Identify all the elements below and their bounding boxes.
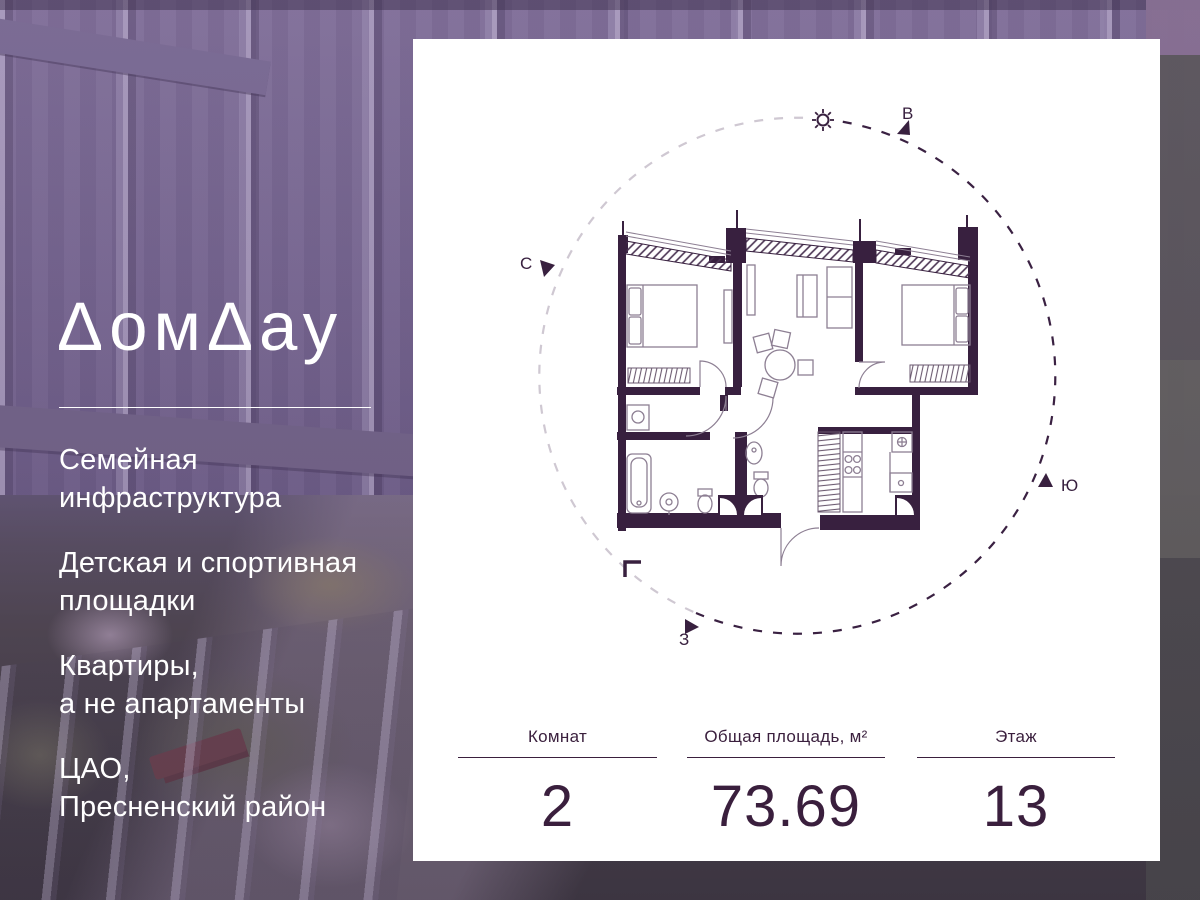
kitchen-counter-icon [843, 432, 862, 512]
door-thresholds [718, 495, 915, 515]
toilet-icon [698, 489, 712, 513]
toilet-icon [754, 472, 768, 497]
selling-point-playgrounds: Детская и спортивная площадки [59, 544, 357, 620]
shelf-icon [747, 265, 755, 315]
selling-point-district: ЦАО, Пресненский район [59, 750, 357, 826]
brand-logo: ΔомΔау [57, 292, 343, 361]
door-arc [700, 361, 726, 387]
stat-floor-value: 13 [917, 778, 1115, 836]
compass-north-label: С [520, 254, 532, 273]
wardrobe-icon [724, 290, 732, 343]
listing-card: С В Ю З [413, 39, 1160, 861]
corner-mark [625, 562, 641, 577]
side-table-icon [798, 360, 813, 375]
compass-west-label: З [679, 630, 689, 649]
basin-icon [746, 442, 762, 464]
balcony-door-arc [781, 528, 819, 566]
closet-icon [818, 432, 840, 512]
compass-markers: С В Ю З [520, 104, 1078, 649]
stat-floor-label: Этаж [917, 727, 1115, 758]
chair-icon [758, 378, 778, 398]
sun-icon [809, 106, 837, 134]
stat-area-label: Общая площадь, м² [687, 727, 885, 758]
compass-north-arrow-icon [540, 260, 555, 277]
stat-rooms: Комнат 2 [458, 727, 657, 836]
compass-south-label: Ю [1061, 476, 1078, 495]
stat-rooms-label: Комнат [458, 727, 657, 758]
cabinet-icon [827, 267, 852, 328]
fridge-icon [892, 432, 912, 452]
sink-icon [660, 493, 678, 515]
dining-table-icon [765, 350, 795, 380]
sofa-icon [797, 275, 817, 317]
facade-hatch-bands [626, 238, 970, 278]
selling-points-list: Семейная инфраструктура Детская и спорти… [59, 441, 357, 826]
stat-area-value: 73.69 [687, 778, 885, 836]
stat-rooms-value: 2 [458, 778, 657, 836]
bed-icon [902, 285, 970, 345]
stat-floor: Этаж 13 [917, 727, 1115, 836]
bathtub-icon [627, 454, 651, 513]
chair-icon [753, 333, 773, 353]
compass-west-arrow-icon [685, 619, 699, 634]
real-estate-ad-banner[interactable]: ΔомΔау Семейная инфраструктура Детская и… [0, 0, 1200, 900]
door-arc [859, 362, 885, 388]
stat-area: Общая площадь, м² 73.69 [687, 727, 885, 836]
kitchen-sink-icon [890, 473, 912, 492]
selling-point-apartments: Квартиры, а не апартаменты [59, 647, 357, 723]
selling-point-family: Семейная инфраструктура [59, 441, 357, 517]
bed-icon [627, 285, 697, 347]
washing-machine-icon [627, 405, 649, 430]
chair-icon [772, 330, 791, 349]
compass-east-label: В [902, 104, 913, 123]
divider-line [59, 407, 371, 408]
compass-south-arrow-icon [1038, 473, 1053, 487]
